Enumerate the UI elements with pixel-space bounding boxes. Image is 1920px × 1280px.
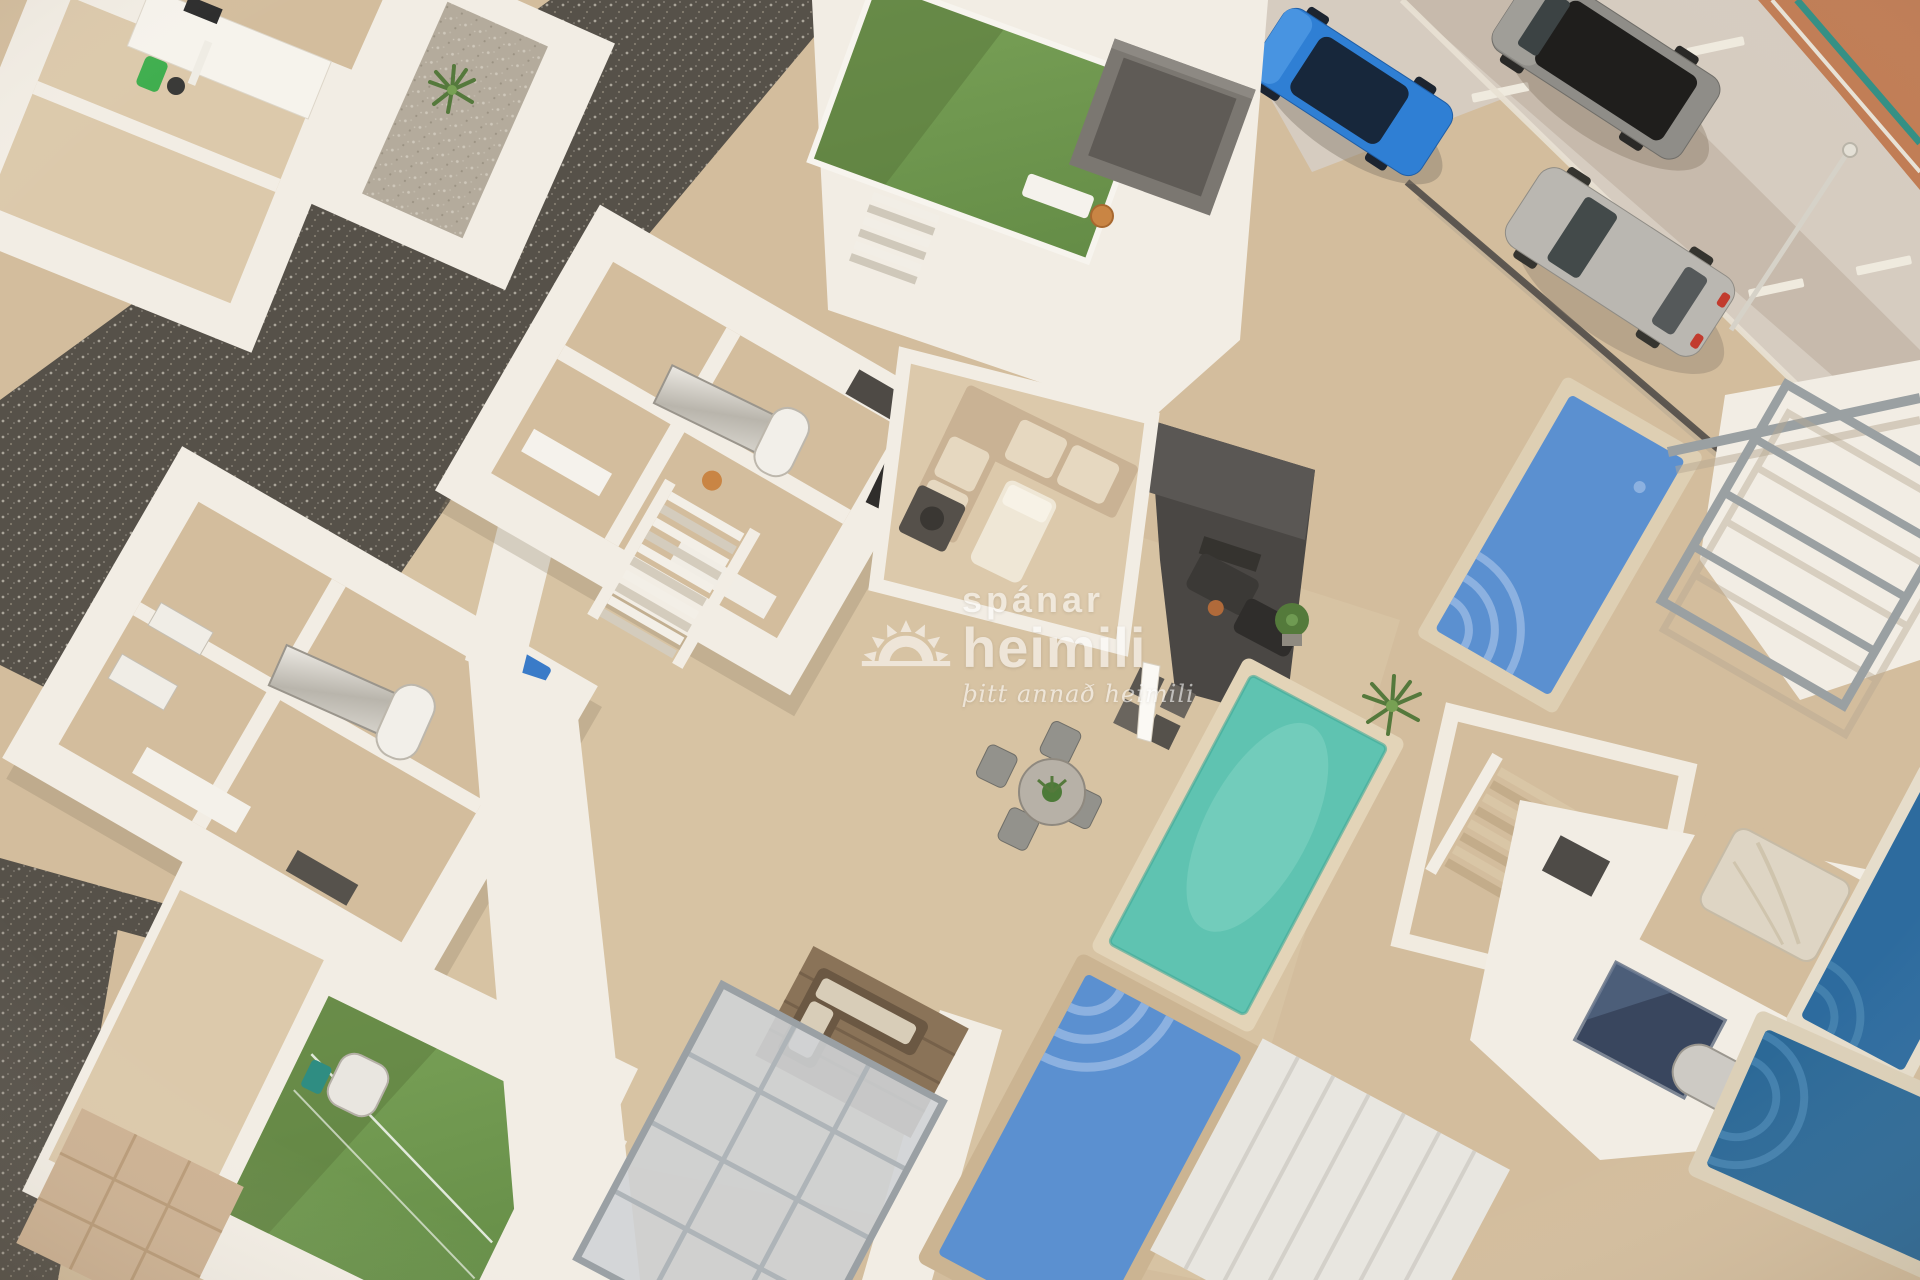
photo-vignette <box>0 0 1920 1280</box>
aerial-photo: spánar heimili þitt annað heimili <box>0 0 1920 1280</box>
